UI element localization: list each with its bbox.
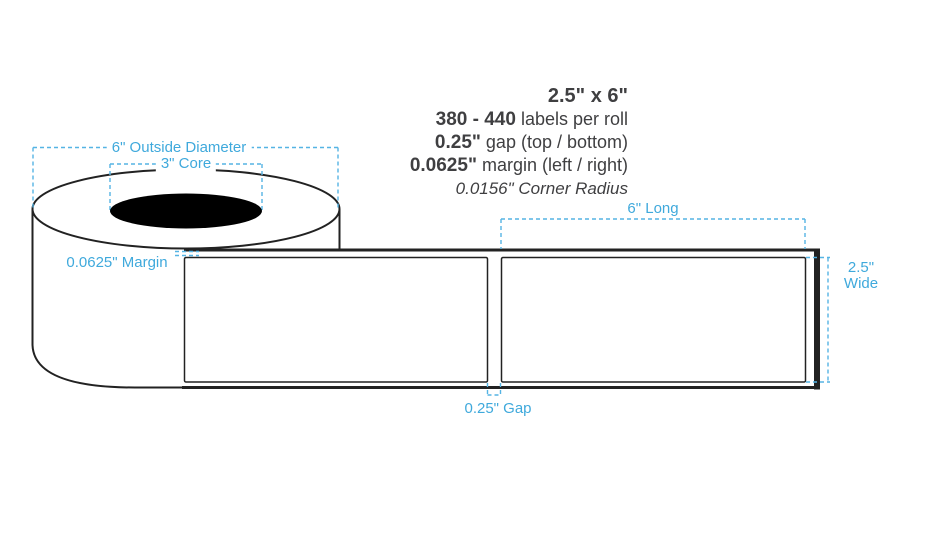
spec-labels-per-roll: 380 - 440 labels per roll — [410, 108, 628, 131]
roll-margin-label: 0.0625" Margin — [66, 255, 167, 271]
core-label: 3" Core — [156, 156, 216, 172]
label-width-label: 2.5" Wide — [844, 260, 878, 292]
outside-diameter-label: 6" Outside Diameter — [107, 140, 252, 156]
spec-margin: 0.0625" margin (left / right) — [410, 154, 628, 177]
spec-labels-per-roll-text: labels per roll — [516, 109, 628, 129]
spec-margin-text: margin (left / right) — [477, 155, 628, 175]
spec-corner-radius: 0.0156" Corner Radius — [410, 177, 628, 200]
diagram-line-art — [0, 0, 934, 544]
label-width-word: Wide — [844, 275, 878, 292]
label-2 — [502, 258, 806, 383]
spec-size: 2.5" x 6" — [410, 85, 628, 108]
label-length-label: 6" Long — [627, 201, 678, 217]
length-dimension-lines — [501, 219, 805, 249]
label-roll-spec-diagram: 2.5" x 6" 380 - 440 labels per roll 0.25… — [0, 0, 934, 544]
spec-margin-value: 0.0625" — [410, 155, 477, 176]
margin-indicator — [175, 252, 199, 256]
spec-gap: 0.25" gap (top / bottom) — [410, 131, 628, 154]
label-gap-label: 0.25" Gap — [464, 401, 531, 417]
label-width-value: 2.5" — [848, 259, 874, 276]
spec-gap-text: gap (top / bottom) — [481, 132, 628, 152]
spec-labels-per-roll-value: 380 - 440 — [436, 109, 516, 130]
spec-list: 2.5" x 6" 380 - 440 labels per roll 0.25… — [410, 85, 628, 200]
label-1 — [185, 258, 488, 383]
roll-left-side-and-bottom-curve — [33, 209, 191, 388]
spec-gap-value: 0.25" — [435, 132, 481, 153]
spec-size-value: 2.5" x 6" — [548, 85, 628, 107]
roll-core-hole — [110, 194, 262, 229]
